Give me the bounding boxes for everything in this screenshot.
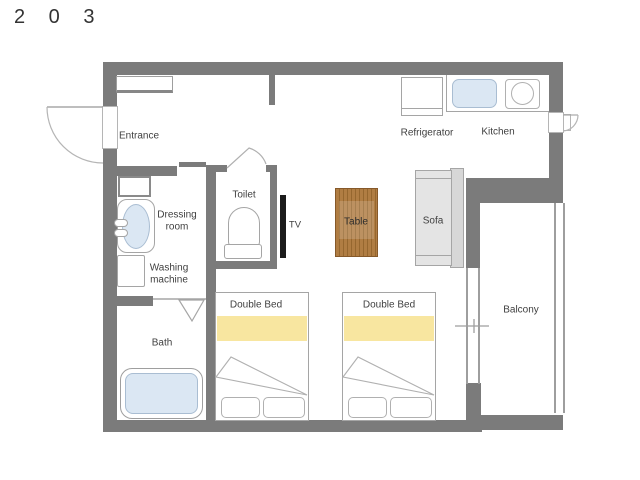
wall-entrance-dressing [117,166,177,176]
table-label: Table [344,216,368,228]
stove-burner [511,82,534,105]
balcony-label: Balcony [503,304,539,316]
wall-left-upper [103,62,117,108]
kitchen-sink [452,79,497,108]
tv-label: TV [289,221,301,232]
floor-plan: 2 0 3 [0,0,640,480]
kitchen-label: Kitchen [481,126,514,138]
sofa-label: Sofa [423,215,444,227]
refrigerator [401,77,443,116]
refrigerator-door-line [402,108,442,109]
bath-door-fold [179,300,204,321]
bed-2-label: Double Bed [363,299,415,311]
wall-right-upper [549,62,563,114]
entrance-closet [116,76,173,93]
wall-right-mid [549,133,563,178]
sofa-armrest-line-top [416,178,451,179]
entrance-door-opening [102,106,118,149]
wall-balcony-top [466,178,563,203]
bath-label: Bath [152,337,173,349]
wall-bottom [103,420,482,432]
balcony-rail-inner [554,203,556,413]
toilet-tank [224,244,262,259]
wall-top [103,62,563,75]
balcony-window-line-left [466,268,468,384]
double-bed-1 [215,292,309,421]
dressing-cabinet [118,176,151,197]
toilet-door-swing [227,148,266,168]
wall-toilet-bottom [206,261,277,269]
sofa-armrest-line-bottom [416,255,451,256]
room-number-title: 2 0 3 [14,6,103,29]
bathtub-inner [125,373,198,414]
kitchen-backdoor-opening [548,112,564,133]
faucet-tab-bottom [114,229,128,237]
faucet-tab-top [114,219,128,227]
wall-left-lower [103,149,117,432]
tv-screen [280,195,286,258]
wall-stub-entrance-kitchen [269,75,275,105]
washing-machine-label: Washing machine [141,263,197,286]
entrance-door-arc [47,107,103,163]
wall-balcony-left-upper [466,203,480,268]
toilet-label: Toilet [232,189,255,201]
balcony-rail-outer [563,203,565,413]
kitchen-backdoor-leaf [563,114,571,131]
bed-1-pillow-left [221,397,260,418]
refrigerator-label: Refrigerator [401,127,454,139]
wall-toilet-right [270,165,277,267]
wall-balcony-bottom [481,415,563,430]
wall-bath-dressing [117,296,153,306]
bed-1-label: Double Bed [230,299,282,311]
dressing-room-label: Dressing room [149,210,205,233]
sofa-backrest [450,168,464,268]
bed-2-pillow-right [390,397,432,418]
bed-2-blanket-band [344,316,434,341]
wall-balcony-left-lower [466,383,481,421]
double-bed-2 [342,292,436,421]
dressing-door-slide-line [179,162,206,167]
bed-2-pillow-left [348,397,387,418]
balcony-window-line-right [478,268,480,384]
bed-1-pillow-right [263,397,305,418]
sink-bowl [122,204,150,249]
bed-1-blanket-band [217,316,307,341]
entrance-label: Entrance [119,130,159,142]
toilet-bowl [228,207,260,247]
wall-toilet-top-left [206,165,227,172]
